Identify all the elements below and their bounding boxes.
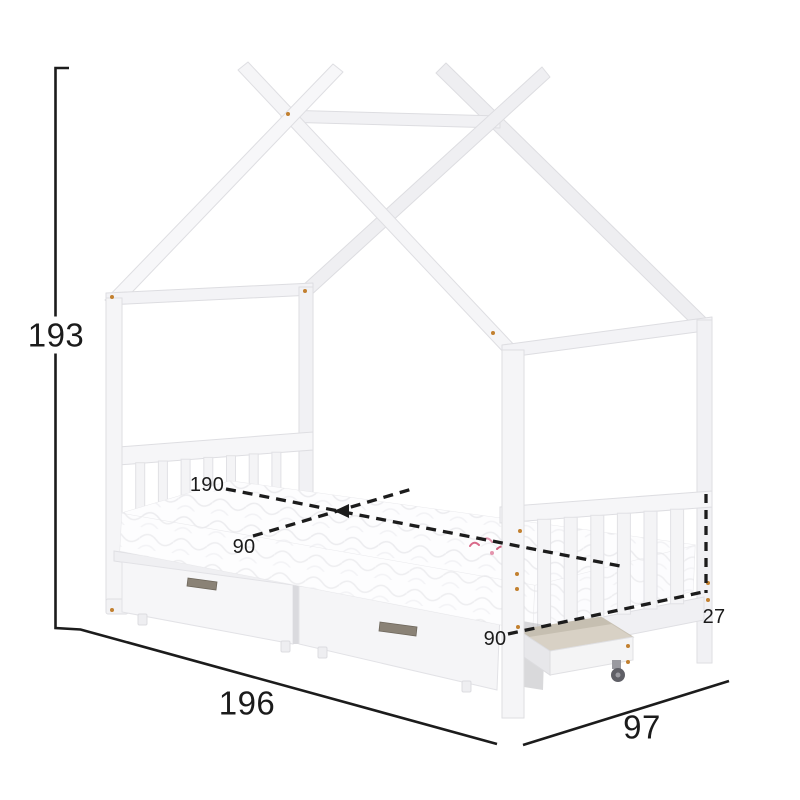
- dim-label-width: 97: [623, 711, 661, 744]
- dim-label-height: 193: [23, 317, 90, 354]
- dim-label-base-width: 90: [484, 629, 507, 649]
- dim-label-length: 196: [219, 687, 276, 720]
- product-dimension-diagram: 193 196 97 190 90 90 27: [0, 0, 800, 800]
- dim-label-mattress-width: 90: [233, 537, 256, 557]
- front-right-post: [502, 350, 524, 718]
- caster-wheel: [611, 660, 625, 682]
- roof-frame: [105, 62, 712, 358]
- dim-label-mattress-length: 190: [190, 475, 224, 495]
- bed-line-drawing: [0, 0, 800, 800]
- dim-label-rail-height: 27: [703, 607, 726, 627]
